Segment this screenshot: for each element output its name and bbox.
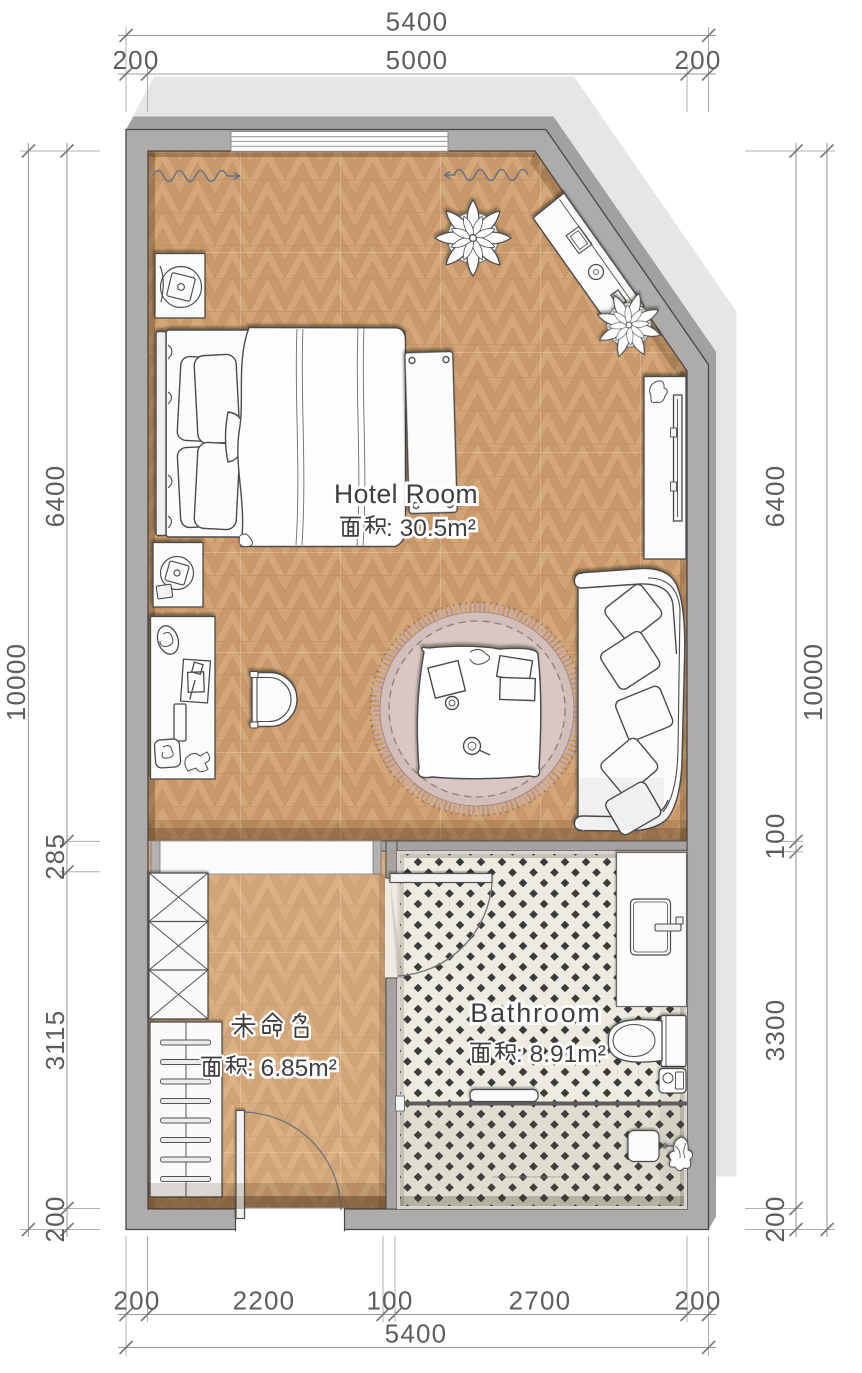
svg-text:200: 200	[675, 45, 722, 75]
svg-text:3115: 3115	[40, 1010, 70, 1071]
svg-text:: 6.85m²: : 6.85m²	[247, 1055, 337, 1082]
svg-text:100: 100	[367, 1286, 414, 1316]
svg-text:6400: 6400	[760, 465, 790, 528]
svg-text:2700: 2700	[509, 1286, 572, 1316]
svg-text:5400: 5400	[385, 1319, 448, 1349]
svg-text:285: 285	[40, 833, 70, 880]
svg-text:3300: 3300	[760, 999, 790, 1062]
svg-text:5400: 5400	[386, 7, 449, 37]
svg-text:10000: 10000	[798, 643, 828, 721]
svg-text:10000: 10000	[1, 643, 31, 721]
svg-text:200: 200	[40, 1196, 70, 1243]
svg-text:Hotel Room: Hotel Room	[334, 479, 478, 509]
svg-text:100: 100	[760, 813, 790, 860]
svg-text:200: 200	[113, 45, 160, 75]
svg-text:: 8.91m²: : 8.91m²	[516, 1041, 606, 1068]
svg-text:200: 200	[675, 1286, 722, 1316]
svg-text:Bathroom: Bathroom	[470, 998, 601, 1028]
svg-text:: 30.5m²: : 30.5m²	[386, 515, 476, 542]
svg-text:200: 200	[760, 1196, 790, 1243]
svg-text:200: 200	[114, 1286, 161, 1316]
svg-text:5000: 5000	[386, 45, 449, 75]
svg-text:6400: 6400	[40, 465, 70, 528]
svg-text:2200: 2200	[233, 1286, 296, 1316]
